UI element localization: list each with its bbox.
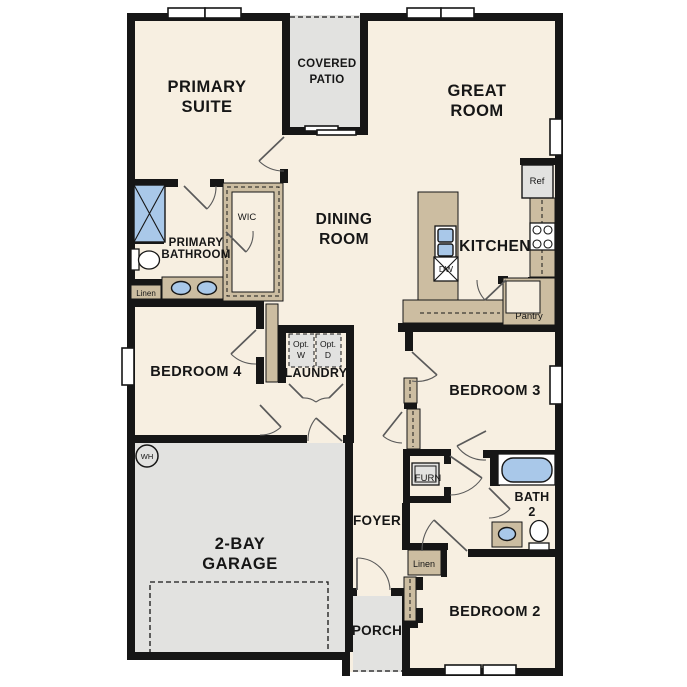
furnace-label: FURN bbox=[415, 473, 442, 484]
laundry-label: LAUNDRY bbox=[285, 366, 348, 380]
window-bedroom2-1 bbox=[445, 665, 481, 675]
water-heater-label: WH bbox=[141, 452, 154, 461]
great-room-label-1: GREAT bbox=[447, 82, 506, 100]
sink-icon-1 bbox=[172, 282, 191, 295]
opt-washer-label-2: W bbox=[297, 350, 305, 360]
tub-icon bbox=[502, 458, 552, 482]
linen-bathroom-label: Linen bbox=[136, 289, 156, 298]
refrigerator-label: Ref bbox=[530, 176, 545, 187]
opt-washer-label-1: Opt. bbox=[293, 339, 309, 349]
porch-label: PORCH bbox=[352, 623, 402, 638]
primary-bathroom-label-2: BATHROOM bbox=[161, 249, 230, 261]
pantry-label: Pantry bbox=[515, 311, 543, 322]
great-room-label-2: ROOM bbox=[450, 102, 503, 120]
primary-suite-label-1: PRIMARY bbox=[168, 78, 247, 96]
wic-label: WIC bbox=[238, 212, 257, 223]
opt-dryer-label-1: Opt. bbox=[320, 339, 336, 349]
window-bedroom3 bbox=[550, 366, 562, 404]
toilet-tank-primary bbox=[131, 249, 139, 270]
garage-label-2: GARAGE bbox=[202, 555, 277, 573]
primary-suite-label-2: SUITE bbox=[181, 98, 232, 116]
window-primary-suite-2 bbox=[205, 8, 241, 18]
wall-fill bbox=[266, 304, 278, 382]
garage-label-1: 2-BAY bbox=[215, 535, 266, 553]
bedroom4-label: BEDROOM 4 bbox=[150, 364, 241, 380]
foyer-label: FOYER bbox=[353, 513, 401, 528]
bedroom2-label: BEDROOM 2 bbox=[449, 604, 540, 620]
opt-dryer-label-2: D bbox=[325, 350, 331, 360]
bath2-label-2: 2 bbox=[528, 505, 535, 519]
linen-hall-label: Linen bbox=[413, 559, 435, 569]
toilet-tank-bath2 bbox=[529, 543, 549, 550]
sink-icon-bath2 bbox=[499, 528, 516, 541]
window-primary-suite-1 bbox=[168, 8, 205, 18]
window-great-room-1 bbox=[407, 8, 441, 18]
covered-patio-area bbox=[286, 15, 364, 131]
window-great-room-2 bbox=[441, 8, 474, 18]
covered-patio-label-2: PATIO bbox=[310, 74, 345, 86]
toilet-icon-primary bbox=[139, 251, 160, 269]
sink-icon-2 bbox=[198, 282, 217, 295]
dishwasher-label: DW bbox=[439, 264, 453, 274]
floor-plan: PRIMARY SUITE COVERED PATIO GREAT ROOM D… bbox=[0, 0, 687, 687]
covered-patio-label-1: COVERED bbox=[298, 58, 357, 70]
dining-room-label-1: DINING bbox=[316, 211, 373, 228]
kitchen-sink-basin-1 bbox=[438, 229, 453, 242]
kitchen-sink-basin-2 bbox=[438, 244, 453, 256]
window-great-room-side bbox=[550, 119, 562, 155]
window-bedroom4 bbox=[122, 348, 134, 385]
primary-bathroom-label-1: PRIMARY bbox=[169, 237, 224, 249]
window-bedroom2-2 bbox=[483, 665, 516, 675]
bath2-label-1: BATH bbox=[515, 490, 550, 504]
patio-slider-2 bbox=[317, 130, 356, 135]
bedroom3-label: BEDROOM 3 bbox=[449, 383, 540, 399]
dining-room-label-2: ROOM bbox=[319, 231, 369, 248]
toilet-icon-bath2 bbox=[530, 521, 548, 542]
kitchen-label: KITCHEN bbox=[459, 238, 531, 255]
floor-plan-canvas: PRIMARY SUITE COVERED PATIO GREAT ROOM D… bbox=[0, 0, 687, 687]
kitchen-counter bbox=[403, 300, 505, 323]
